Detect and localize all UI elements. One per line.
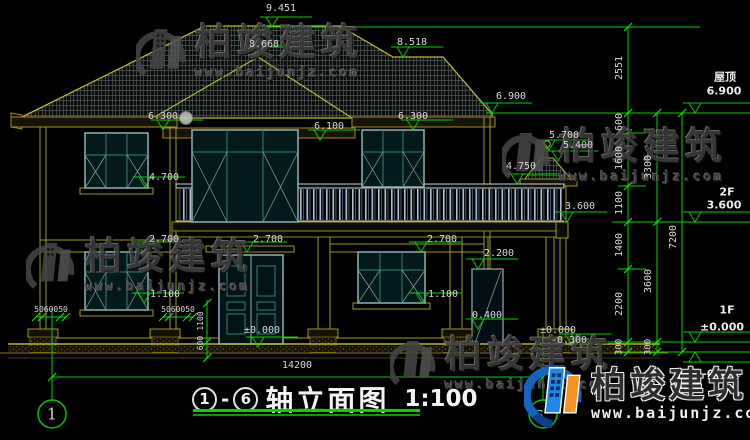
dim-label: 8.518 [397, 38, 427, 48]
dim-label: ±0.000 [700, 322, 744, 333]
cursor-artifact [179, 111, 193, 125]
dim-label: 2200 [615, 292, 625, 316]
dim-label: 3300 [644, 155, 654, 179]
title-dash: - [221, 387, 229, 411]
dim-label: -0.300 [551, 336, 587, 346]
dim-label: 1600 [615, 146, 625, 170]
dim-label: 2.700 [253, 235, 283, 245]
dim-label: 6.900 [496, 92, 526, 102]
dim-label: 4.700 [149, 173, 179, 183]
dim-label: 5060050 [34, 306, 68, 314]
dim-label: 屋顶 [714, 72, 736, 83]
dim-label: ±0.000 [244, 326, 280, 336]
dim-label: 14200 [282, 361, 312, 371]
site-logo: 柏竣建筑 www.baijunjz.com [524, 362, 750, 428]
title-axis-end-circle: 6 [233, 387, 258, 412]
dim-label: 6.300 [398, 112, 428, 122]
window-1f-left [85, 252, 148, 310]
dim-label: 7200 [669, 225, 679, 249]
drawing-title-block: 1 - 6 轴立面图 1:100 [192, 379, 478, 419]
dim-label: 6.900 [707, 86, 742, 97]
dim-label: 1100 [615, 191, 625, 215]
dim-label: 6.300 [148, 112, 178, 122]
window-2f-left [85, 133, 148, 188]
side-door [472, 269, 503, 348]
cad-elevation-screenshot: 1 6 柏竣建筑 www.baijunjz.com 柏竣建筑 www.baiju… [0, 0, 750, 440]
dim-label: 1.100 [150, 290, 180, 300]
balcony-door-2f [192, 130, 298, 222]
title-underline [193, 409, 420, 412]
dim-label: 600 [615, 113, 625, 131]
site-logo-icon [524, 362, 586, 428]
dim-label: 8.668 [249, 40, 279, 50]
balcony-slab [172, 222, 566, 231]
dim-label: 9.451 [266, 4, 296, 14]
dim-label: 1.100 [428, 290, 458, 300]
dim-label: 600 [197, 336, 205, 350]
title-axis-start-circle: 1 [192, 387, 217, 412]
dim-label: 0.400 [472, 311, 502, 321]
dim-label: 1F [719, 305, 734, 316]
dim-label: 2.200 [484, 249, 514, 259]
dim-label: 4.750 [506, 162, 536, 172]
dim-label: 6.100 [314, 122, 344, 132]
dim-label: 1100 [197, 311, 205, 330]
axis-label-1: 1 [47, 405, 57, 424]
site-logo-url: www.baijunjz.com [591, 404, 750, 422]
window-1f-right [358, 252, 425, 303]
title-underline-thin [193, 414, 420, 416]
dim-label: 2.700 [149, 235, 179, 245]
ground-line [0, 344, 668, 358]
drawing-title-text: 轴立面图 [265, 379, 389, 419]
dim-label: 5.400 [563, 141, 593, 151]
dim-label: 5060050 [161, 306, 195, 314]
dim-label: 2551 [615, 56, 625, 80]
dim-label: 1400 [615, 233, 625, 257]
dim-label: 2.700 [427, 235, 457, 245]
site-logo-brand: 柏竣建筑 [591, 368, 750, 405]
dim-label: 3600 [644, 269, 654, 293]
dim-label: 2F [719, 187, 734, 198]
dim-label: 3.600 [707, 200, 742, 211]
dim-label: 3.600 [565, 202, 595, 212]
dim-label: 300 [645, 339, 654, 355]
dim-label: 300 [616, 339, 625, 355]
window-2f-center [362, 130, 424, 187]
